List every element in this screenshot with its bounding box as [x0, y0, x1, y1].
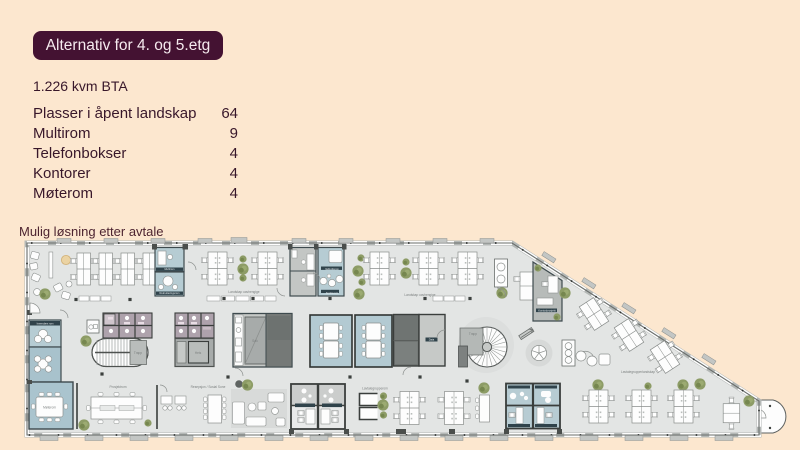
svg-text:Trapp: Trapp [469, 332, 477, 336]
svg-text:Lavtalegrupperlandskap: Lavtalegrupperlandskap [621, 370, 655, 374]
svg-text:Prosjektrom: Prosjektrom [109, 385, 126, 389]
svg-text:Multirom: Multirom [165, 267, 175, 271]
svg-text:Velferdsrom: Velferdsrom [325, 267, 339, 271]
svg-text:Heis: Heis [195, 351, 202, 355]
svg-text:Smittevern: Smittevern [326, 291, 339, 295]
svg-text:Landskap uavhengige: Landskap uavhengige [404, 293, 435, 297]
svg-text:Søk: Søk [252, 339, 258, 343]
svg-text:Resepsjon / Sosial Sone: Resepsjon / Sosial Sone [191, 385, 226, 389]
svg-text:Data: Data [429, 338, 435, 342]
svg-text:Møterom: Møterom [43, 406, 56, 410]
svg-text:Rekrutteringsrom: Rekrutteringsrom [160, 291, 180, 295]
svg-text:Innendørs rom: Innendørs rom [37, 322, 54, 326]
svg-text:Kontor/prosjekt: Kontor/prosjekt [538, 309, 556, 313]
svg-text:Lavtalegrupperom: Lavtalegrupperom [362, 387, 388, 391]
svg-text:Trapp: Trapp [134, 351, 142, 355]
svg-text:Landskap uavhengige: Landskap uavhengige [228, 290, 259, 294]
